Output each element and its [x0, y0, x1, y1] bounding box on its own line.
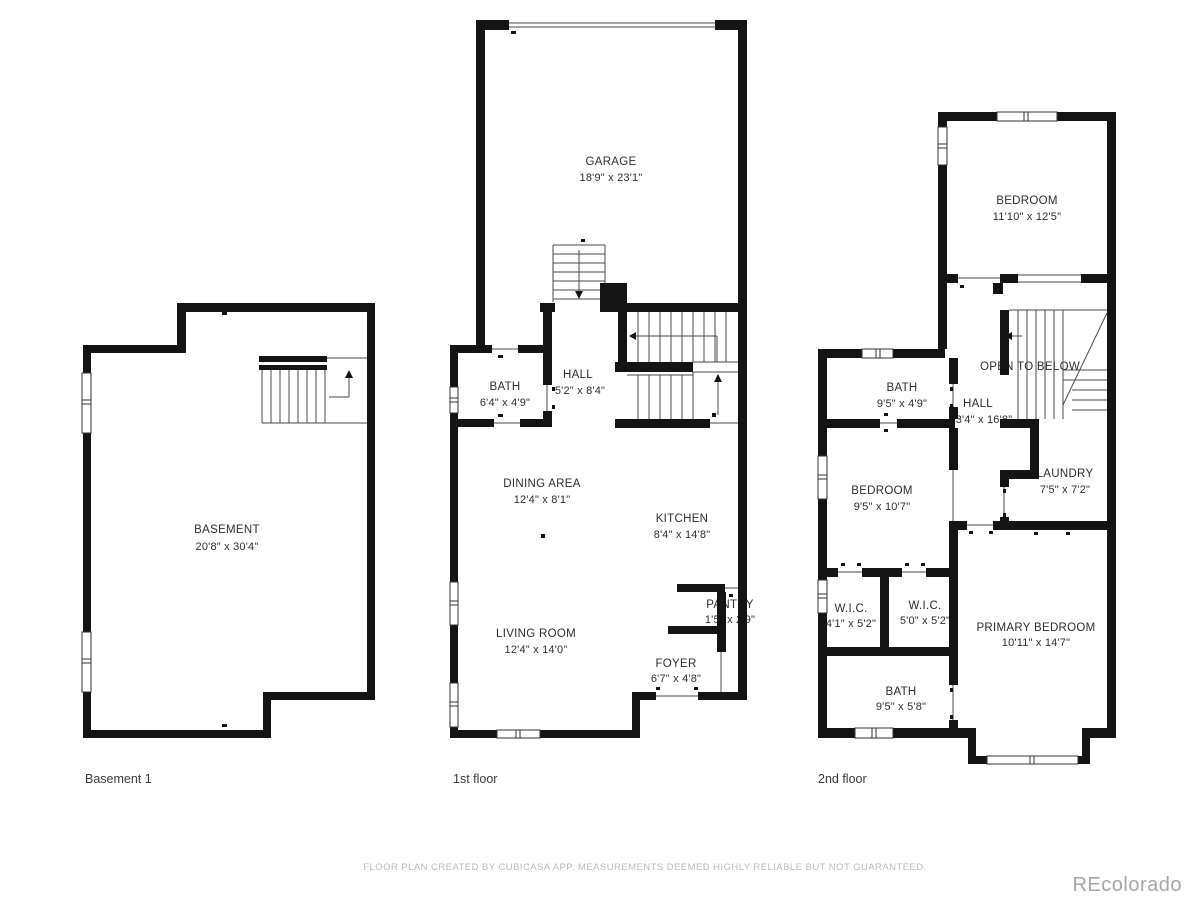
room-dims: 1'5" x 2'9"	[705, 614, 755, 626]
room-label: W.I.C.	[908, 600, 941, 612]
second-floor-plan: BEDROOM 11'10" x 12'5" BATH 9'5" x 4'9" …	[818, 112, 1116, 786]
room-label: LAUNDRY	[1037, 468, 1094, 480]
window	[938, 127, 947, 165]
window	[862, 349, 893, 358]
disclaimer-text: FLOOR PLAN CREATED BY CUBICASA APP. MEAS…	[90, 862, 1200, 873]
room-label: BEDROOM	[996, 195, 1058, 207]
window	[450, 683, 458, 727]
first-floor-walls	[450, 20, 747, 738]
stair-down-arrow-icon	[575, 291, 583, 299]
room-label: BATH	[885, 686, 916, 698]
room-dims: 18'9" x 23'1"	[580, 172, 643, 184]
staircase-to-basement	[553, 245, 605, 302]
room-dims: 6'7" x 4'8"	[651, 673, 701, 685]
floor-name-basement: Basement 1	[85, 772, 152, 786]
room-label: HALL	[563, 369, 593, 381]
second-floor-room-labels: BEDROOM 11'10" x 12'5" BATH 9'5" x 4'9" …	[826, 195, 1096, 713]
room-label: BATH	[489, 381, 520, 393]
window	[82, 373, 91, 433]
room-label: HALL	[963, 398, 993, 410]
room-dims: 9'5" x 10'7"	[854, 501, 911, 513]
floor-plan-drawing: BASEMENT 20'8" x 30'4"	[0, 0, 1200, 900]
basement-ticks	[222, 312, 227, 727]
room-label: BASEMENT	[194, 524, 260, 536]
room-dims: 9'5" x 5'8"	[876, 701, 926, 713]
window	[997, 112, 1057, 121]
stair-direction-line	[329, 378, 349, 397]
stair-left-arrow-icon	[629, 332, 636, 340]
stair-up-arrow-icon	[714, 374, 722, 382]
room-dims: 5'0" x 5'2"	[900, 615, 950, 627]
room-label: KITCHEN	[656, 513, 709, 525]
room-label: BEDROOM	[851, 485, 913, 497]
first-floor-windows	[450, 387, 540, 738]
first-floor-thin-lines	[492, 23, 738, 696]
room-label: PRIMARY BEDROOM	[976, 622, 1095, 634]
room-dims: 12'4" x 14'0"	[505, 644, 568, 656]
stair-up-arrow-icon	[345, 370, 353, 378]
room-dims: 9'5" x 4'9"	[877, 398, 927, 410]
recolorado-watermark: REcolorado	[1072, 874, 1182, 897]
basement-plan: BASEMENT 20'8" x 30'4"	[82, 303, 375, 786]
room-label: LIVING ROOM	[496, 628, 576, 640]
room-dims: 6'4" x 4'9"	[480, 397, 530, 409]
window	[818, 580, 827, 613]
room-dims: 12'4" x 8'1"	[514, 494, 571, 506]
room-label: GARAGE	[585, 156, 636, 168]
window	[82, 632, 91, 692]
room-dims: 20'8" x 30'4"	[196, 541, 259, 553]
room-dims: 4'1" x 5'2"	[826, 618, 876, 630]
first-floor-plan: GARAGE 18'9" x 23'1" BATH 6'4" x 4'9" HA…	[450, 20, 755, 786]
second-floor-walls	[818, 112, 1116, 764]
room-label: W.I.C.	[834, 603, 867, 615]
open-to-below-annotation: OPEN TO BELOW	[980, 361, 1080, 373]
room-dims: 10'11" x 14'7"	[1002, 637, 1070, 649]
room-dims: 5'2" x 8'4"	[555, 385, 605, 397]
window	[450, 387, 458, 413]
window	[987, 756, 1078, 764]
basement-room-label: BASEMENT 20'8" x 30'4"	[194, 524, 260, 553]
basement-walls	[83, 303, 375, 738]
room-dims: 8'4" x 14'8"	[654, 529, 711, 541]
floor-plan-page: BASEMENT 20'8" x 30'4"	[0, 0, 1200, 900]
room-label: FOYER	[655, 658, 696, 670]
window	[450, 582, 458, 625]
room-dims: 7'5" x 7'2"	[1040, 484, 1090, 496]
room-dims: 11'10" x 12'5"	[993, 211, 1061, 223]
floor-name-first: 1st floor	[453, 772, 497, 786]
window	[855, 728, 893, 738]
floor-name-second: 2nd floor	[818, 772, 867, 786]
room-label: DINING AREA	[503, 478, 580, 490]
window	[497, 730, 540, 738]
window	[818, 456, 827, 499]
room-label: BATH	[886, 382, 917, 394]
